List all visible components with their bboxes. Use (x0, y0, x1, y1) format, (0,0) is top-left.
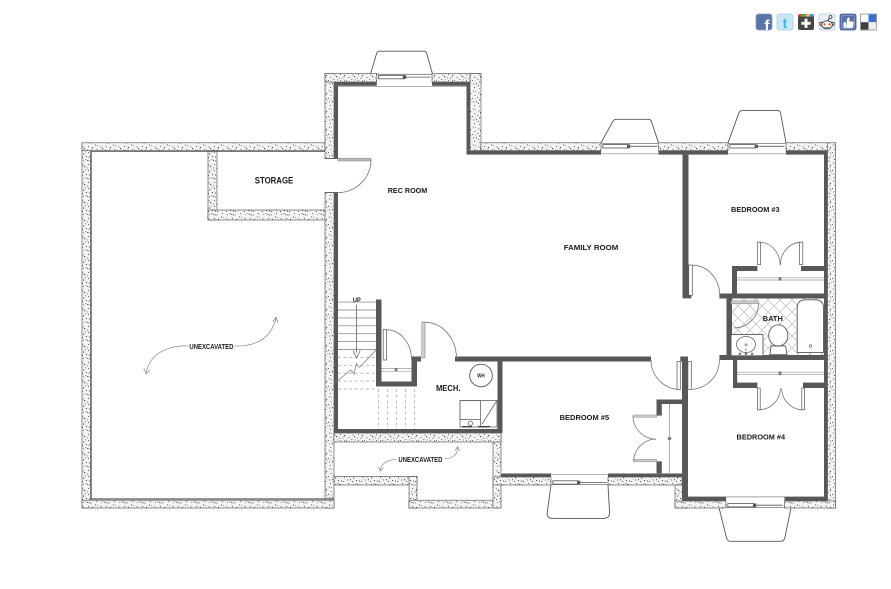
svg-text:BATH: BATH (763, 314, 783, 323)
svg-text:UNEXCAVATED: UNEXCAVATED (189, 342, 233, 351)
svg-text:UP: UP (353, 297, 361, 304)
svg-text:BEDROOM #3: BEDROOM #3 (731, 205, 780, 214)
svg-text:REC ROOM: REC ROOM (388, 186, 428, 195)
svg-text:t: t (783, 15, 788, 31)
svg-text:UNEXCAVATED: UNEXCAVATED (398, 456, 442, 464)
svg-text:STORAGE: STORAGE (255, 175, 294, 186)
svg-text:FAMILY ROOM: FAMILY ROOM (564, 243, 619, 252)
svg-text:MECH.: MECH. (436, 383, 461, 393)
svg-text:WH: WH (477, 374, 485, 380)
svg-text:BEDROOM #4: BEDROOM #4 (737, 433, 786, 442)
svg-text:BEDROOM #5: BEDROOM #5 (560, 413, 610, 422)
